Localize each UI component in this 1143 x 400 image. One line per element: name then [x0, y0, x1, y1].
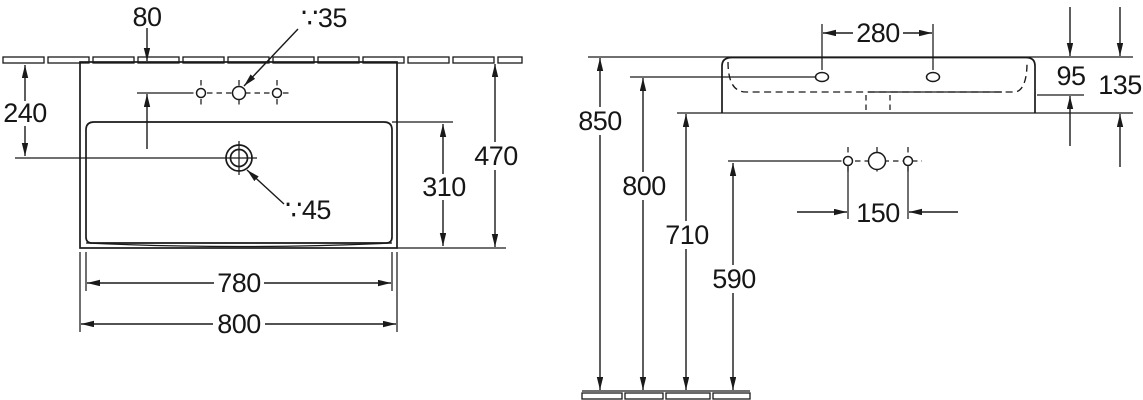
- dim-connection-height: 590: [712, 163, 756, 390]
- dim-label-710: 710: [665, 220, 709, 250]
- dim-inner-width: 780: [86, 252, 392, 298]
- dim-underside-height: 710: [665, 114, 709, 390]
- dim-label-150: 150: [856, 198, 900, 228]
- dim-label-95: 95: [1056, 61, 1085, 91]
- dim-label-80: 80: [132, 2, 161, 32]
- dim-rim-to-overflow: 95: [1056, 7, 1085, 146]
- dim-bowl-front-to-drain: 310: [422, 124, 466, 246]
- dim-label-280: 280: [856, 18, 900, 48]
- label-faucet-diameter: ∵35: [244, 3, 347, 86]
- dim-mounting-spacing: 280: [822, 18, 933, 70]
- faucet-hole-right: [273, 89, 282, 98]
- connection-hole-left: [844, 157, 853, 166]
- faucet-holes: [137, 80, 292, 106]
- mounting-hole-right: [927, 73, 940, 82]
- dim-rim-height: 850: [578, 58, 622, 390]
- dim-label-780: 780: [217, 268, 261, 298]
- dim-label-800-height: 800: [622, 171, 666, 201]
- label-drain-diameter: ∵45: [247, 170, 331, 225]
- faucet-hole-left: [197, 89, 206, 98]
- dim-mounting-height: 800: [622, 78, 666, 390]
- technical-drawing-canvas: 80 ∵35 ∵45 240 470: [0, 0, 1143, 400]
- connection-holes: [728, 147, 922, 175]
- plan-view: 80 ∵35 ∵45 240 470: [3, 2, 522, 339]
- dim-label-470: 470: [474, 141, 518, 171]
- dim-faucet-offset: 80: [132, 2, 161, 149]
- dim-label-310: 310: [422, 172, 466, 202]
- dim-connection-spacing: 150: [797, 167, 958, 228]
- washbasin-dimension-drawing: 80 ∵35 ∵45 240 470: [0, 0, 1143, 400]
- mounting-hole-left: [816, 73, 829, 82]
- dim-label-800-width: 800: [217, 309, 261, 339]
- floor-hatch: [582, 391, 750, 399]
- dim-label-850: 850: [578, 106, 622, 136]
- dim-wall-to-drain: 240: [3, 65, 47, 156]
- connection-hole-center: [869, 153, 886, 170]
- dim-label-240: 240: [3, 98, 47, 128]
- dim-label-590: 590: [712, 264, 756, 294]
- basin-side-profile: [722, 58, 1035, 114]
- dim-label-dia35: ∵35: [301, 3, 347, 33]
- connection-hole-right: [904, 157, 913, 166]
- faucet-hole-center: [233, 87, 246, 100]
- dim-label-dia45: ∵45: [285, 195, 331, 225]
- dim-overall-depth: 470: [474, 64, 518, 247]
- dim-front-height: 135: [1098, 7, 1142, 167]
- drain-hole: [15, 141, 257, 175]
- dim-label-135: 135: [1098, 70, 1142, 100]
- side-view: 280 95 135: [578, 7, 1142, 399]
